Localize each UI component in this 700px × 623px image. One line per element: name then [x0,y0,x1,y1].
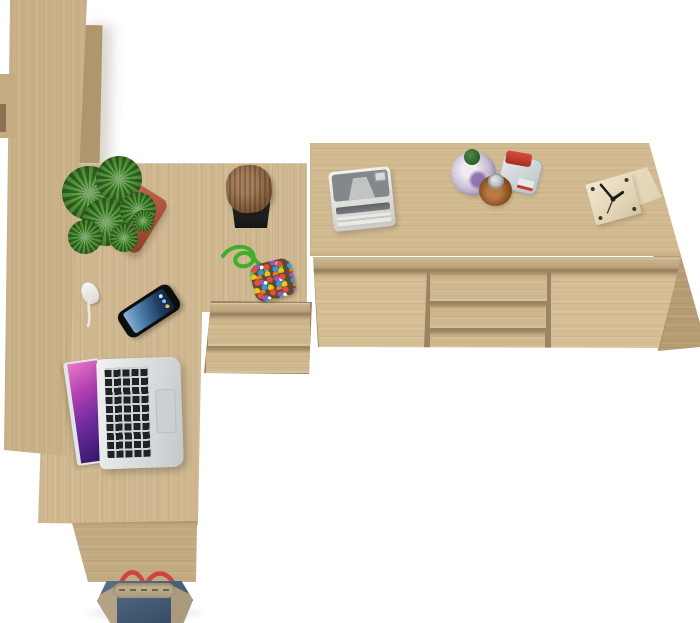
cube-clock [588,162,666,228]
sideboard-drawer-front [430,331,545,348]
smartphone [112,284,186,340]
smartphone-body [115,282,183,341]
sideboard-drawer-front [430,272,547,301]
laptop [70,352,186,484]
printer [328,166,396,232]
succulent-rosette [132,210,154,232]
bag-zipper [119,589,169,591]
sideboard-left-door [314,272,427,348]
pedestal-drawer-front [206,348,310,373]
bottle-cap-green [464,149,480,165]
sideboard-front [311,257,683,350]
sideboard-right-door [551,272,681,348]
bottle-label [517,178,535,192]
bottle-cap-silver [488,173,504,189]
drawer-pedestal [204,301,312,375]
bookcase-bracket [0,104,6,132]
smartphone-screen [122,288,175,334]
pedestal-drawer-front [208,315,310,346]
sideboard-drawer-stack [430,272,547,348]
laptop-keyboard [104,367,151,458]
pedestal-top-rail [210,303,310,313]
succulent-rosette [68,220,102,254]
laptop-deck [96,357,184,470]
earbuds-cable [78,296,102,328]
tote-bag [97,581,193,623]
laptop-trackpad [155,389,177,434]
printer-button [374,171,386,181]
sideboard-top-rail [313,257,681,269]
bottle-amber [479,175,512,206]
bag-interior [113,583,175,598]
sideboard-drawer-front [430,304,546,328]
furniture-render-scene [0,0,700,623]
